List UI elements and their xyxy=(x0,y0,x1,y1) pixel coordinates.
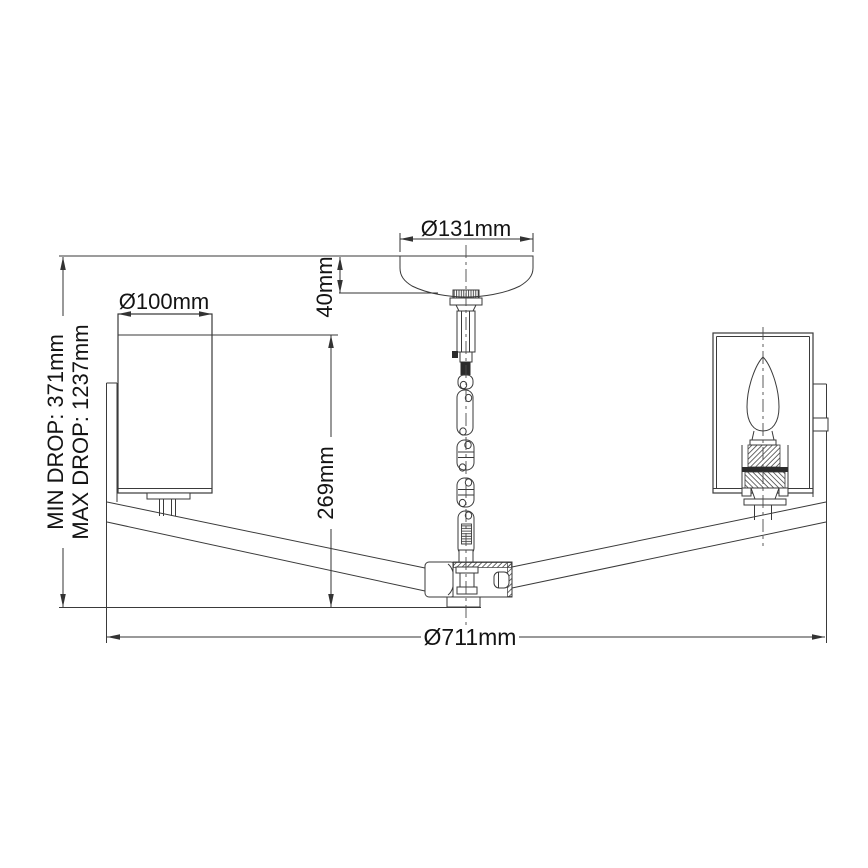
dim-canopy-diameter: Ø131mm xyxy=(400,216,533,252)
drawing-page: Ø131mm 40mm Ø100mm 269mm Ø711mm MIN DROP… xyxy=(0,0,868,868)
bracket-knob xyxy=(812,418,828,431)
dim-shade-diameter-label: Ø100mm xyxy=(119,289,209,314)
right-arm xyxy=(512,502,826,588)
dim-max-drop-label: MAX DROP: 1237mm xyxy=(68,324,93,539)
hub-bottom-plate xyxy=(447,597,480,607)
dim-drop-range: MIN DROP: 371mm MAX DROP: 1237mm xyxy=(43,257,93,607)
dim-canopy-height-label: 40mm xyxy=(312,256,337,317)
dim-shade-drop: 269mm xyxy=(313,335,338,607)
dim-shade-diameter: Ø100mm xyxy=(118,289,212,314)
technical-drawing: Ø131mm 40mm Ø100mm 269mm Ø711mm MIN DROP… xyxy=(0,0,868,868)
shade-holder-plate xyxy=(147,493,190,499)
left-bracket xyxy=(107,383,118,643)
dim-min-drop-label: MIN DROP: 371mm xyxy=(43,334,68,530)
right-bracket xyxy=(812,384,828,643)
left-shade xyxy=(118,314,338,516)
left-arm xyxy=(107,502,425,591)
central-hub xyxy=(425,562,512,607)
dim-fixture-diameter: Ø711mm xyxy=(107,624,825,650)
dim-canopy-diameter-label: Ø131mm xyxy=(421,216,511,241)
dim-shade-drop-label: 269mm xyxy=(313,446,338,519)
dim-fixture-diameter-label: Ø711mm xyxy=(424,624,517,650)
suspension-chain xyxy=(457,375,474,563)
right-shade xyxy=(713,327,813,546)
hub-side-knob xyxy=(494,572,509,588)
